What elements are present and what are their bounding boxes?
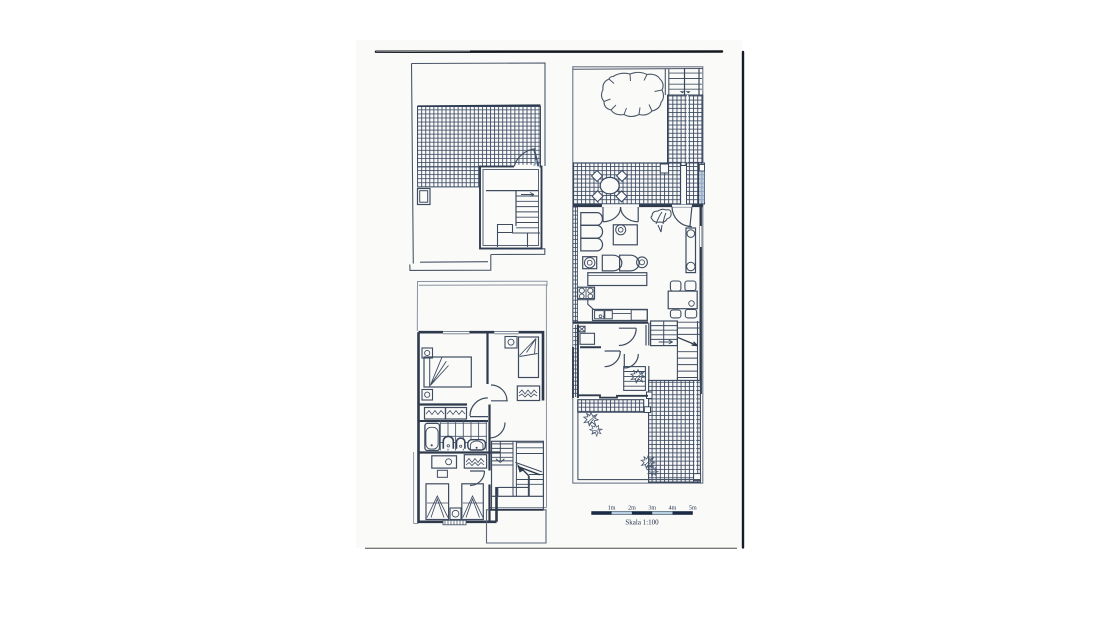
svg-text:3m: 3m: [648, 506, 656, 512]
svg-text:1m: 1m: [608, 506, 616, 512]
svg-text:Skala 1:100: Skala 1:100: [625, 519, 659, 527]
svg-text:5m: 5m: [689, 506, 697, 512]
svg-text:2m: 2m: [628, 506, 636, 512]
svg-text:4m: 4m: [669, 506, 677, 512]
